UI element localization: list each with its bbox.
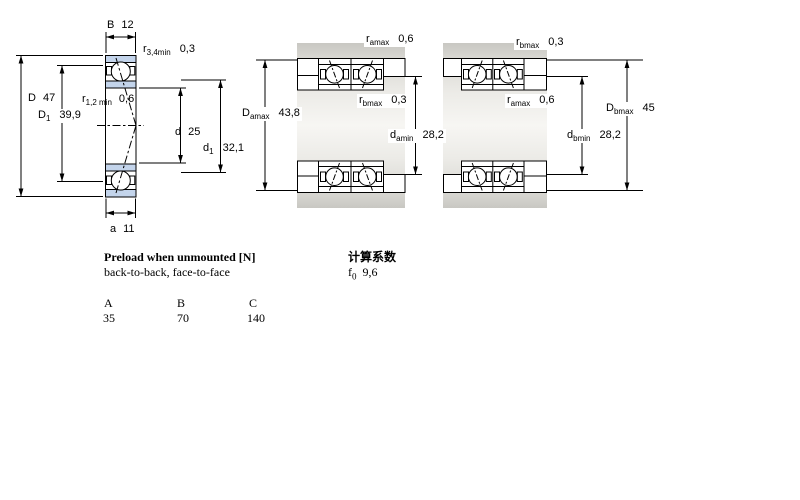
calculation-factor-f0: f09,6	[348, 265, 378, 283]
dim-label-D1: D139,9	[36, 109, 83, 123]
arrangement-right-drawing	[443, 43, 643, 208]
dim-D	[16, 56, 103, 197]
dim-a	[106, 199, 136, 219]
bearing-pair-bottom	[462, 161, 525, 193]
preload-value-A: 35	[103, 311, 115, 325]
inner-ring-bottom	[106, 164, 137, 171]
dim-db	[547, 77, 589, 175]
outer-ring-bottom	[106, 190, 137, 198]
bearing-cross-section-view	[16, 32, 226, 218]
dim-label-dbmin: dbmin28,2	[565, 129, 623, 143]
dim-B	[106, 32, 136, 53]
preload-value-C: 140	[247, 311, 265, 325]
dim-label-r12: r1,2 min0,6	[82, 93, 134, 107]
dim-label-ramax-top: ramax0,6	[364, 33, 416, 47]
dim-label-d: d25	[175, 126, 200, 139]
dim-label-Dbmax: Dbmax45	[604, 102, 657, 116]
dim-label-B: B12	[107, 19, 134, 32]
preload-col-A: A	[104, 296, 113, 310]
dim-label-damin: damin28,2	[388, 129, 446, 143]
bearing-pair-top	[462, 59, 525, 91]
dim-Db	[547, 60, 644, 191]
dim-label-d1: d132,1	[203, 142, 244, 156]
inner-ring-top	[106, 81, 137, 88]
outer-ring-top	[106, 56, 137, 63]
ball-top	[111, 62, 130, 81]
dim-label-r34: r3,4min0,3	[143, 43, 195, 57]
dim-label-rbmax-top: rbmax0,3	[514, 36, 566, 50]
dim-label-Damax: Damax43,8	[240, 107, 302, 121]
preload-value-B: 70	[177, 311, 189, 325]
dim-Da	[256, 60, 297, 191]
bearing-pair-bottom	[319, 161, 384, 193]
dim-da	[405, 77, 422, 175]
dim-label-rbmax-inner: rbmax0,3	[357, 94, 409, 108]
bearing-pair-top	[319, 59, 384, 91]
dim-D1	[57, 66, 103, 182]
preload-subtitle: back-to-back, face-to-face	[104, 265, 230, 279]
arrangement-left-drawing	[256, 43, 422, 208]
dim-label-ramax-inner: ramax0,6	[505, 94, 557, 108]
preload-title: Preload when unmounted [N]	[104, 250, 255, 264]
dim-label-a: a11	[110, 223, 135, 236]
preload-col-C: C	[249, 296, 257, 310]
preload-col-B: B	[177, 296, 185, 310]
bearing-datasheet-drawing: B12 r3,4min0,3 D47 D139,9 r1,2 min0,6 d2…	[0, 0, 800, 500]
ball-bottom	[111, 171, 130, 190]
calculation-factors-title: 计算系数	[348, 250, 396, 264]
dim-label-D: D47	[28, 92, 55, 105]
